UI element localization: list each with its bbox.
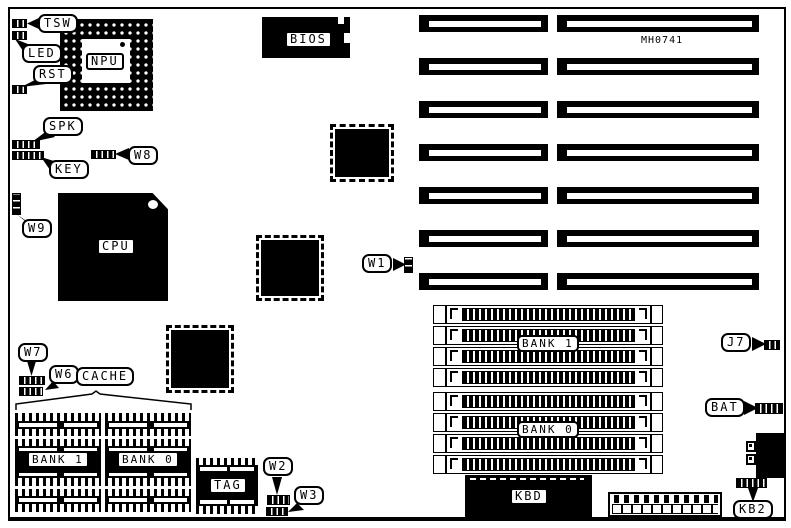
- w7-jumper: [19, 376, 45, 385]
- qfp-chip-1: [330, 124, 394, 182]
- npu-label: NPU: [86, 53, 124, 70]
- key-connector: [12, 151, 44, 160]
- simm-socket-8: [433, 455, 663, 474]
- qfp-chip-3: [166, 325, 234, 393]
- w3-jumper: [266, 507, 288, 516]
- w2-jumper: [267, 495, 290, 505]
- isa-slot-8bit-3: [419, 101, 548, 118]
- tsw-connector: [12, 19, 27, 28]
- spk-connector: [12, 140, 40, 149]
- npu-pin1-dot: [120, 42, 125, 47]
- callout-w1: W1: [362, 254, 392, 273]
- j7-connector: [764, 340, 780, 350]
- callout-w6: W6: [49, 365, 79, 384]
- isa-slot-8bit-1: [419, 15, 548, 32]
- callout-spk: SPK: [43, 117, 83, 136]
- bat-connector: [755, 403, 783, 414]
- isa-slot-16bit-7: [557, 273, 759, 290]
- part-number: MH0741: [641, 35, 683, 46]
- isa-slot-8bit-6: [419, 230, 548, 247]
- bios-notch-side: [344, 33, 350, 43]
- isa-slot-16bit-2: [557, 58, 759, 75]
- power-connector: [608, 492, 722, 517]
- callout-w9: W9: [22, 219, 52, 238]
- qfp-die: [335, 129, 389, 177]
- kbd-label: KBD: [510, 488, 548, 505]
- tag-label: TAG: [209, 477, 247, 494]
- isa-slot-16bit-1: [557, 15, 759, 32]
- rst-connector: [12, 85, 27, 94]
- w8-jumper: [91, 150, 116, 159]
- cache-bank0-label: BANK 0: [117, 451, 179, 468]
- din-solder-pin-2: [746, 454, 756, 465]
- led-connector: [12, 31, 27, 40]
- callout-rst: RST: [33, 65, 73, 84]
- simm-socket-4: [433, 368, 663, 387]
- simm-socket-5: [433, 392, 663, 411]
- callout-w7: W7: [18, 343, 48, 362]
- cache-bank1-label: BANK 1: [27, 451, 89, 468]
- isa-slot-16bit-3: [557, 101, 759, 118]
- bios-notch-top: [338, 17, 344, 24]
- isa-slot-8bit-5: [419, 187, 548, 204]
- bios-label: BIOS: [285, 31, 332, 48]
- isa-slot-8bit-4: [419, 144, 548, 161]
- power-connector-pins: [612, 495, 718, 503]
- din-solder-pin-1: [746, 441, 756, 452]
- qfp-die: [261, 240, 319, 296]
- callout-kb2: KB2: [733, 500, 773, 519]
- isa-slot-16bit-6: [557, 230, 759, 247]
- isa-slot-16bit-5: [557, 187, 759, 204]
- motherboard-diagram: MH0741 BIOS NPU CPU BANK 1 BANK 0: [0, 0, 791, 528]
- callout-key: KEY: [49, 160, 89, 179]
- simm-bank1-label: BANK 1: [517, 335, 579, 352]
- qfp-die: [171, 330, 229, 388]
- keyboard-din-connector: [756, 433, 785, 478]
- w1-jumper: [404, 257, 413, 273]
- power-connector-sockets: [612, 504, 718, 514]
- qfp-chip-2: [256, 235, 324, 301]
- isa-slot-8bit-2: [419, 58, 548, 75]
- callout-cache: CACHE: [76, 367, 134, 386]
- callout-w8: W8: [128, 146, 158, 165]
- callout-w2: W2: [263, 457, 293, 476]
- callout-j7: J7: [721, 333, 751, 352]
- simm-socket-1: [433, 305, 663, 324]
- cpu-label: CPU: [97, 238, 135, 255]
- callout-tsw: TSW: [38, 14, 78, 33]
- simm-bank0-label: BANK 0: [517, 421, 579, 438]
- isa-slot-8bit-7: [419, 273, 548, 290]
- w6-jumper: [19, 387, 43, 396]
- kb2-connector: [736, 478, 767, 488]
- callout-bat: BAT: [705, 398, 745, 417]
- w9-jumper: [12, 193, 21, 215]
- callout-w3: W3: [294, 486, 324, 505]
- isa-slot-16bit-4: [557, 144, 759, 161]
- callout-led: LED: [22, 44, 62, 63]
- cpu-pin1-dot: [148, 200, 158, 209]
